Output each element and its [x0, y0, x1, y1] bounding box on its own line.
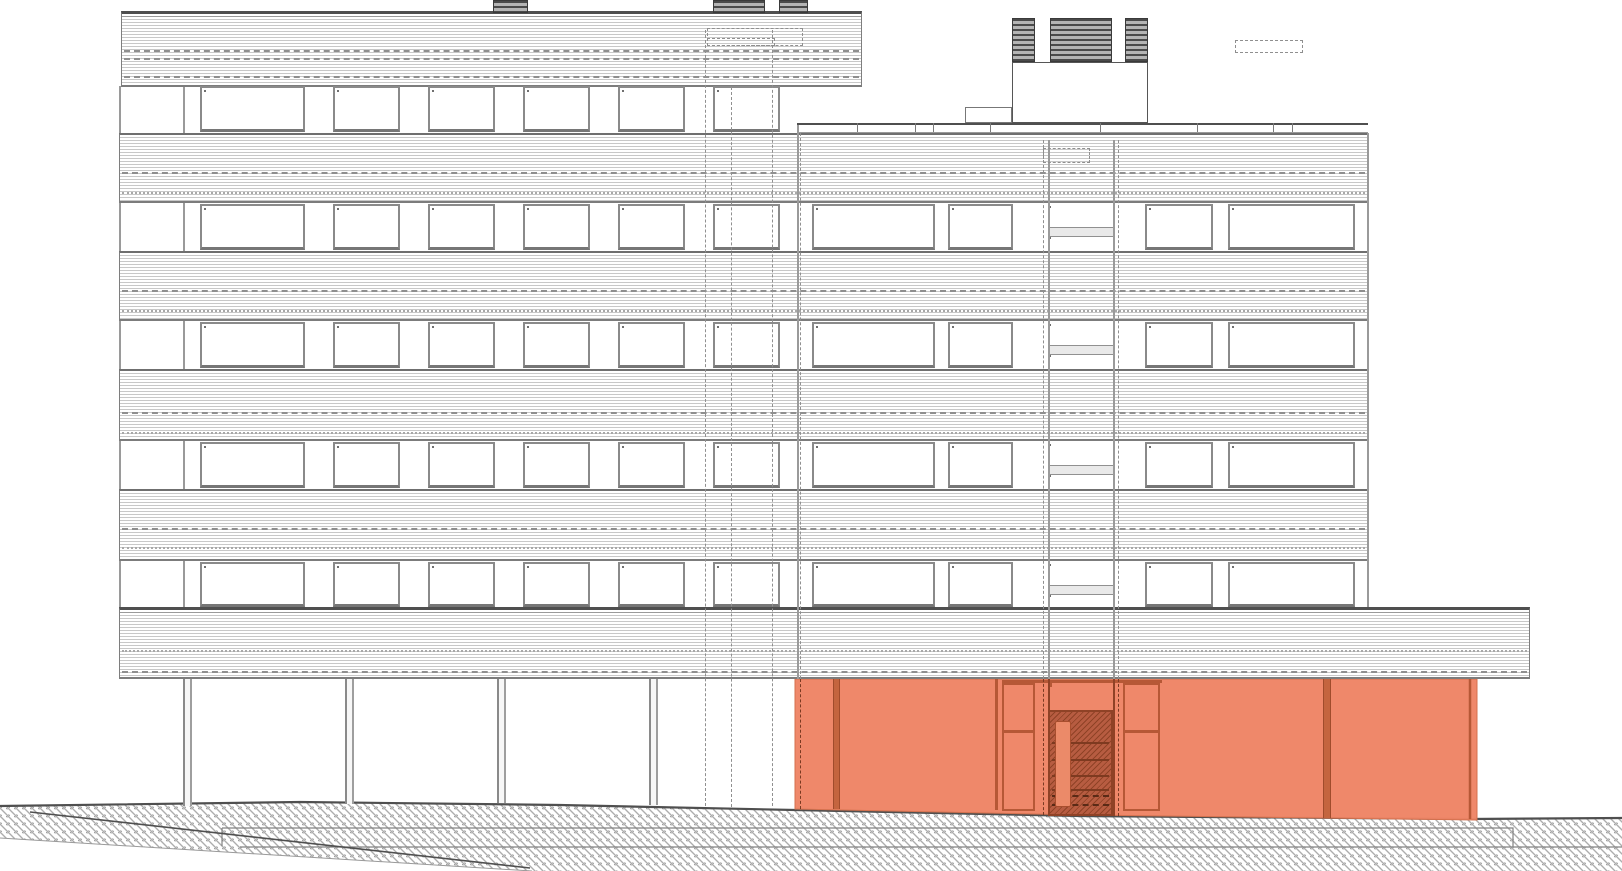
- window-group: [428, 562, 495, 607]
- window-pane: [337, 566, 339, 568]
- roof-chimney: [713, 0, 765, 13]
- projection-line: [1113, 140, 1115, 679]
- parapet-joint-tick: [1197, 123, 1198, 132]
- window-group: [948, 204, 1013, 250]
- window-group: [618, 442, 685, 488]
- roof-chimney: [493, 0, 528, 13]
- window-group: [618, 562, 685, 607]
- spandrel-band-2: [119, 251, 1368, 321]
- hidden-projection-line: [731, 87, 732, 807]
- window-group: [428, 322, 495, 368]
- stair-window-bottom: [1048, 237, 1113, 250]
- ground-slab-band-inner-line: [120, 612, 1529, 613]
- window-pane: [1149, 566, 1151, 568]
- stair-window-top: [1048, 206, 1113, 227]
- entrance-door-leaf: [1055, 721, 1071, 807]
- window-group: [713, 86, 780, 132]
- window-pane: [717, 446, 719, 448]
- storefront-divider: [833, 679, 840, 809]
- window-pane: [717, 566, 719, 568]
- window-pane: [337, 326, 339, 328]
- window-pane: [717, 208, 719, 210]
- parapet-joint-tick: [990, 123, 991, 132]
- window-group: [713, 204, 780, 250]
- parapet-joint-tick: [1292, 123, 1293, 132]
- entrance-side-panel: [1123, 683, 1160, 811]
- spandrel-band-4: [119, 489, 1368, 561]
- shaft-hidden-line: [1043, 679, 1044, 815]
- projection-line: [797, 123, 799, 679]
- window-group: [812, 204, 935, 250]
- window-pane: [204, 566, 206, 568]
- window-group: [523, 204, 590, 250]
- pilotis-column: [497, 679, 506, 803]
- window-group: [812, 442, 935, 488]
- shaft-edge-line: [1113, 679, 1115, 816]
- window-group: [1145, 322, 1213, 368]
- window-group: [333, 322, 400, 368]
- window-pane: [622, 566, 624, 568]
- hidden-projection-line: [1043, 140, 1044, 679]
- spandrel-band-1-joint-line: [122, 172, 1365, 174]
- hidden-projection-line: [705, 30, 706, 806]
- window-pane: [337, 90, 339, 92]
- window-group: [523, 562, 590, 607]
- roof-vent-stack: [1050, 18, 1112, 62]
- window-pane: [816, 566, 818, 568]
- window-pane: [432, 326, 434, 328]
- spandrel-band-3: [119, 369, 1368, 441]
- window-pane: [1149, 208, 1151, 210]
- window-pane: [717, 90, 719, 92]
- shaft-hidden-line: [800, 679, 801, 809]
- parapet-cap-line: [797, 123, 1368, 125]
- storefront-mullion: [995, 679, 998, 810]
- roof-band-left-joint-line: [124, 50, 859, 52]
- roof-band-left-joint-line: [124, 76, 859, 78]
- window-pane: [527, 90, 529, 92]
- roof-hatch-outline: [1043, 148, 1090, 163]
- window-group: [523, 442, 590, 488]
- shaft-hidden-line: [1118, 679, 1119, 816]
- roof-hatch-outline: [707, 38, 775, 46]
- spandrel-band-1: [119, 133, 1368, 203]
- window-group: [1145, 442, 1213, 488]
- elevation-canvas: [0, 0, 1622, 871]
- window-group: [713, 442, 780, 488]
- stair-window-top: [1048, 564, 1113, 585]
- window-group: [428, 204, 495, 250]
- window-pane: [952, 326, 954, 328]
- pilotis-column: [345, 679, 354, 804]
- window-pane: [816, 446, 818, 448]
- window-group: [333, 204, 400, 250]
- window-pane: [952, 446, 954, 448]
- window-group: [948, 442, 1013, 488]
- window-group: [618, 204, 685, 250]
- spandrel-band-3-joint-line: [122, 412, 1365, 414]
- window-group: [1228, 442, 1355, 488]
- entrance-stair-recess: [1048, 710, 1113, 816]
- window-group: [200, 322, 305, 368]
- window-group: [333, 442, 400, 488]
- window-pane: [204, 208, 206, 210]
- window-group: [812, 562, 935, 607]
- window-pane: [952, 208, 954, 210]
- window-pane: [527, 566, 529, 568]
- stair-window-bottom: [1048, 355, 1113, 368]
- window-pane: [432, 566, 434, 568]
- window-group: [523, 322, 590, 368]
- window-group: [1145, 562, 1213, 607]
- stair-window-top: [1048, 444, 1113, 465]
- window-group: [948, 322, 1013, 368]
- hidden-projection-line: [772, 30, 773, 806]
- window-pane: [1232, 208, 1234, 210]
- window-pane: [204, 446, 206, 448]
- storefront-divider: [1323, 679, 1331, 818]
- window-pane: [622, 446, 624, 448]
- stair-spandrel-panel: [1048, 465, 1113, 475]
- window-group: [1145, 204, 1213, 250]
- roof-chimney: [779, 0, 808, 13]
- roof-side-box: [965, 107, 1012, 123]
- window-pane: [1232, 566, 1234, 568]
- window-group: [333, 562, 400, 607]
- roof-band-left-inner-line: [122, 16, 861, 17]
- ground-slab-band-joint-line: [122, 671, 1527, 673]
- window-group: [200, 562, 305, 607]
- lift-machine-room: [1012, 62, 1148, 123]
- parapet-joint-tick: [933, 123, 934, 132]
- projection-line: [1367, 133, 1369, 607]
- window-pane: [622, 208, 624, 210]
- parapet-joint-tick: [1100, 123, 1101, 132]
- projection-line: [1048, 140, 1050, 679]
- window-pane: [527, 208, 529, 210]
- window-pane: [337, 208, 339, 210]
- window-group: [200, 442, 305, 488]
- roof-vent-stack: [1012, 18, 1035, 62]
- window-group: [1228, 562, 1355, 607]
- stair-window-bottom: [1048, 475, 1113, 488]
- parapet-joint-tick: [1273, 123, 1274, 132]
- spandrel-band-2-joint-line: [122, 310, 1365, 312]
- parapet-lower-line: [797, 132, 1368, 133]
- pilotis-column: [649, 679, 658, 805]
- window-group: [812, 322, 935, 368]
- window-group: [713, 562, 780, 607]
- window-pane: [1149, 326, 1151, 328]
- roof-hatch-outline: [1235, 40, 1303, 53]
- window-group: [948, 562, 1013, 607]
- stair-spandrel-panel: [1048, 585, 1113, 595]
- entrance-transom: [1048, 683, 1113, 710]
- window-pane: [622, 326, 624, 328]
- window-pane: [816, 208, 818, 210]
- window-group: [200, 86, 305, 132]
- stair-spandrel-panel: [1048, 345, 1113, 355]
- window-pane: [717, 326, 719, 328]
- spandrel-band-4-joint-line: [122, 547, 1365, 549]
- window-group: [1228, 322, 1355, 368]
- entrance-side-panel-split: [1125, 730, 1158, 733]
- shaft-edge-line: [1048, 679, 1050, 816]
- window-group: [523, 86, 590, 132]
- window-group: [333, 86, 400, 132]
- window-pane: [337, 446, 339, 448]
- window-group: [618, 86, 685, 132]
- pilotis-column: [183, 679, 192, 806]
- spandrel-band-1-joint-line: [122, 192, 1365, 194]
- window-group: [428, 86, 495, 132]
- window-pane: [432, 90, 434, 92]
- ground-slab-band-joint-line: [122, 650, 1527, 652]
- window-pane: [1232, 446, 1234, 448]
- window-group: [713, 322, 780, 368]
- window-pane: [816, 326, 818, 328]
- ground-slab-band: [119, 607, 1530, 679]
- window-group: [428, 442, 495, 488]
- roof-band-left: [121, 11, 862, 87]
- window-pane: [527, 326, 529, 328]
- window-group: [200, 204, 305, 250]
- spandrel-band-3-joint-line: [122, 432, 1365, 434]
- spandrel-band-2-joint-line: [122, 290, 1365, 292]
- window-pane: [1232, 326, 1234, 328]
- window-group: [1228, 204, 1355, 250]
- window-pane: [432, 446, 434, 448]
- window-pane: [432, 208, 434, 210]
- hidden-projection-line: [1118, 140, 1119, 679]
- window-pane: [952, 566, 954, 568]
- stair-spandrel-panel: [1048, 227, 1113, 237]
- roof-vent-stack: [1125, 18, 1148, 62]
- window-pane: [527, 446, 529, 448]
- window-group: [618, 322, 685, 368]
- entrance-side-panel: [1002, 683, 1035, 811]
- window-pane: [1149, 446, 1151, 448]
- roof-band-left-joint-line: [124, 58, 859, 60]
- window-pane: [622, 90, 624, 92]
- spandrel-band-4-joint-line: [122, 528, 1365, 530]
- window-pane: [204, 326, 206, 328]
- entrance-side-panel-split: [1004, 730, 1033, 733]
- stair-window-top: [1048, 324, 1113, 345]
- parapet-joint-tick: [915, 123, 916, 132]
- hidden-projection-line: [800, 133, 801, 679]
- parapet-joint-tick: [857, 123, 858, 132]
- stair-window-bottom: [1048, 595, 1113, 608]
- window-pane: [204, 90, 206, 92]
